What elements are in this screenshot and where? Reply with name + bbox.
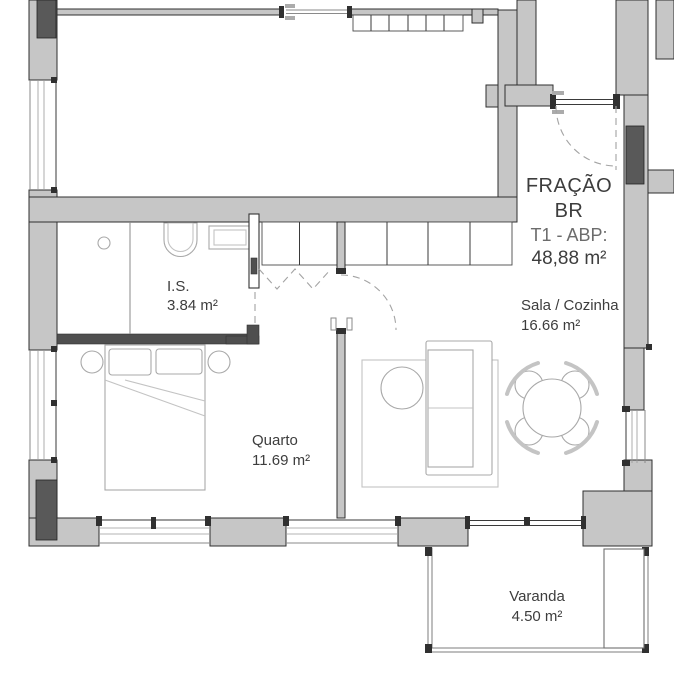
wall-fragment-top-right bbox=[656, 0, 674, 59]
window-bottom-sala bbox=[283, 516, 401, 543]
room-bathroom bbox=[57, 214, 259, 344]
nightstand-right bbox=[208, 351, 230, 373]
floor-plan-drawing: FRAÇÃO BR T1 - ABP: 48,88 m² I.S. 3.84 m… bbox=[0, 0, 674, 674]
fraction-type: T1 - ABP: bbox=[530, 225, 607, 245]
upper-unit-top-wall bbox=[57, 4, 498, 31]
wall-corridor-right bbox=[616, 0, 648, 95]
fraction-title-line2: BR bbox=[555, 200, 584, 222]
sink-icon bbox=[209, 226, 251, 249]
entry-door-swing bbox=[556, 106, 616, 166]
balcony-sliding-door bbox=[465, 516, 586, 529]
fraction-area: 48,88 m² bbox=[532, 248, 607, 269]
floor-plan: FRAÇÃO BR T1 - ABP: 48,88 m² I.S. 3.84 m… bbox=[0, 0, 674, 674]
wardrobe-folding-doors bbox=[259, 269, 331, 289]
balcony-rail-right bbox=[644, 548, 648, 650]
wall-right-mid bbox=[624, 348, 644, 410]
wall-top-thin-left bbox=[57, 9, 283, 15]
sofa bbox=[426, 341, 492, 475]
kitchen-cabinets bbox=[345, 222, 512, 265]
label-sala-name: Sala / Cozinha bbox=[521, 297, 619, 314]
balcony-rail-bottom bbox=[428, 648, 646, 652]
coffee-table bbox=[381, 367, 423, 409]
window-left-upper bbox=[30, 77, 57, 193]
shower-drain-icon bbox=[98, 237, 110, 249]
label-is-name: I.S. bbox=[167, 278, 190, 295]
wall-main-horizontal bbox=[29, 197, 517, 222]
fraction-title-line1: FRAÇÃO bbox=[526, 173, 612, 197]
pillar-bottom-left bbox=[36, 480, 57, 540]
nightstand-left bbox=[81, 351, 103, 373]
wall-corridor-left bbox=[517, 0, 536, 85]
wall-branch-right bbox=[648, 170, 674, 193]
bathroom-corner-post bbox=[247, 325, 259, 344]
bed bbox=[105, 345, 205, 490]
bathroom-door-handle bbox=[251, 258, 257, 274]
balcony-platform bbox=[604, 549, 644, 648]
bedroom-door-swing bbox=[341, 275, 396, 330]
wall-nub-left bbox=[486, 85, 498, 107]
label-varanda-name: Varanda bbox=[509, 588, 565, 605]
wall-corner-bottom-right bbox=[583, 491, 652, 546]
bathroom-sliding-door bbox=[249, 214, 259, 288]
wall-bottom-right bbox=[398, 518, 468, 546]
label-quarto-area: 11.69 m² bbox=[252, 452, 310, 469]
pillar-top-left bbox=[37, 0, 56, 38]
window-left-lower bbox=[30, 346, 57, 463]
entry-door bbox=[550, 91, 620, 170]
window-bottom-bedroom bbox=[96, 516, 211, 543]
pillow-right bbox=[156, 349, 202, 374]
wall-entry-door-jamb-left bbox=[505, 85, 553, 106]
pillow-left bbox=[109, 349, 151, 375]
partition-quarto-sala bbox=[331, 222, 396, 518]
dining-table bbox=[523, 379, 581, 437]
balcony-rail-left bbox=[428, 548, 432, 650]
label-varanda-area: 4.50 m² bbox=[512, 608, 563, 625]
wardrobe bbox=[259, 222, 337, 289]
wall-bottom-mid bbox=[210, 518, 286, 546]
label-is-area: 3.84 m² bbox=[167, 297, 218, 314]
dining-set bbox=[507, 363, 597, 453]
label-quarto-name: Quarto bbox=[252, 432, 298, 449]
pillar-right bbox=[626, 126, 644, 184]
label-sala-area: 16.66 m² bbox=[521, 317, 580, 334]
